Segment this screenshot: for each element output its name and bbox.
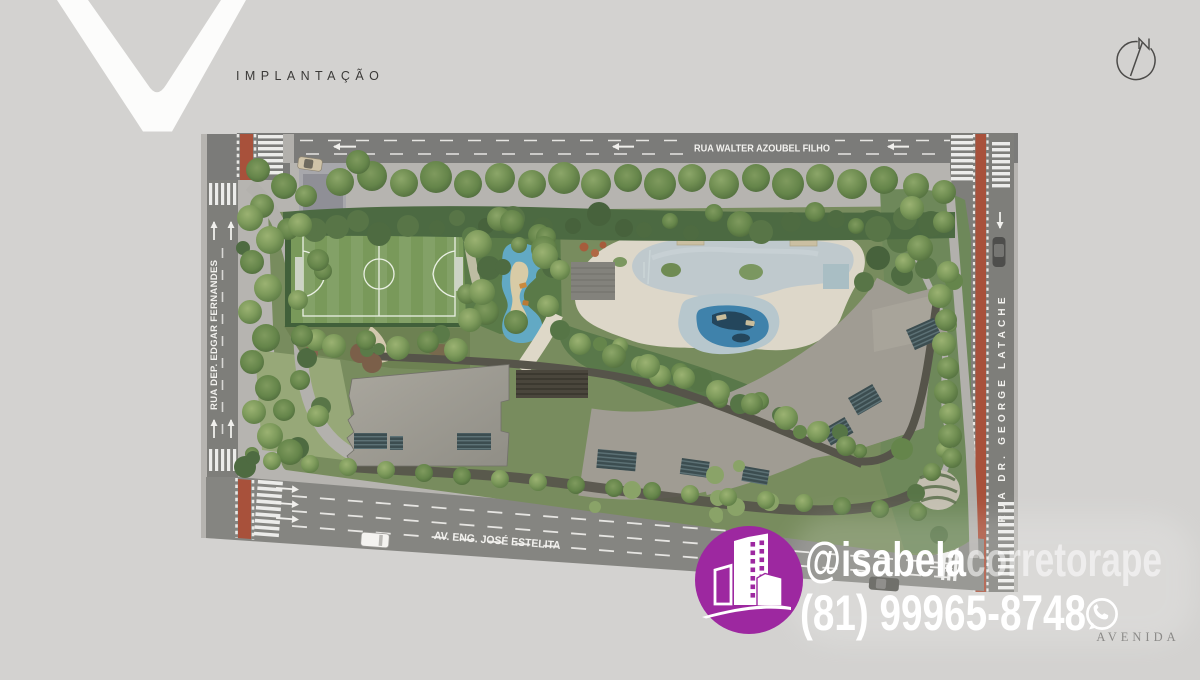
svg-text:IMPLANTAÇÃO: IMPLANTAÇÃO xyxy=(236,69,386,83)
svg-text:(81) 99965-8748: (81) 99965-8748 xyxy=(800,585,1086,641)
svg-text:corretorape: corretorape xyxy=(966,534,1162,587)
svg-text:@isabela: @isabela xyxy=(805,534,966,587)
svg-text:RUA DEP. EDGAR FERNANDES: RUA DEP. EDGAR FERNANDES xyxy=(209,260,220,410)
svg-text:RUA WALTER AZOUBEL FILHO: RUA WALTER AZOUBEL FILHO xyxy=(694,143,830,155)
svg-text:AVENIDA: AVENIDA xyxy=(1096,630,1179,644)
